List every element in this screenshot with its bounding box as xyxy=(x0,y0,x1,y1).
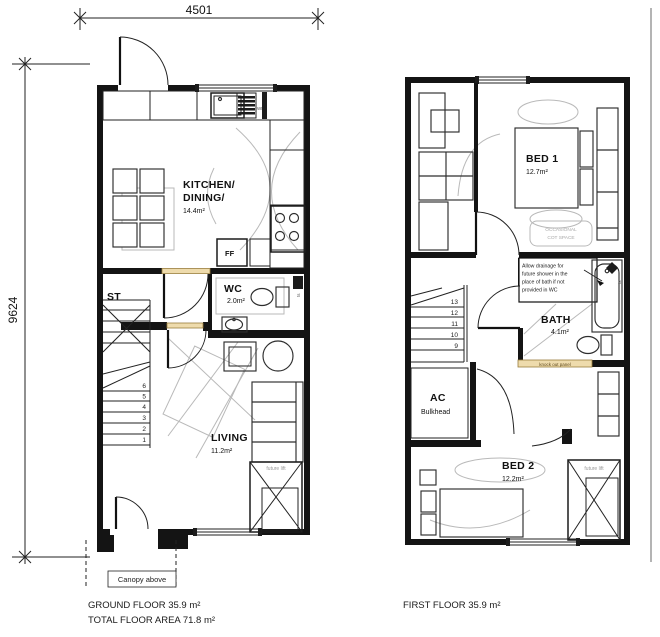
ff-bed1-door xyxy=(476,212,519,255)
ff-bath-area: 4.1m² xyxy=(551,329,570,336)
svg-text:place of bath if not: place of bath if not xyxy=(522,280,565,286)
ff-bed1-bed xyxy=(515,128,593,208)
dimension-top: 4501 xyxy=(74,3,324,30)
ff-future-lift-label: future lift xyxy=(584,466,604,472)
ff-note-arrowhead xyxy=(597,280,604,286)
svg-text:BED 1: BED 1 xyxy=(526,153,558,165)
svg-text:9: 9 xyxy=(454,343,458,350)
gf-living-area: 11.2m² xyxy=(211,448,233,455)
ff-footer-area: FIRST FLOOR 35.9 m² xyxy=(403,600,500,611)
floor-plan-drawing: 4501 9624 xyxy=(0,0,660,637)
ff-bed1-window xyxy=(475,76,530,84)
ff-ac-bulkhead: AC Bulkhead xyxy=(411,368,468,438)
ff-landing-door-arc xyxy=(477,369,514,434)
gf-wc-label: WC xyxy=(224,283,242,295)
gf-porch-stubs xyxy=(97,535,188,552)
dimension-left: 9624 xyxy=(6,57,90,564)
ff-drainage-note: Allow drainage for future shower in the … xyxy=(519,258,604,302)
svg-text:6: 6 xyxy=(142,383,146,390)
svg-text:5: 5 xyxy=(142,394,146,401)
ff-knock-out-label: knock out panel xyxy=(539,362,571,367)
svg-text:provided in WC: provided in WC xyxy=(522,288,558,294)
gf-sofa xyxy=(252,382,303,462)
ff-bed1-label: BED 1 12.7m² xyxy=(526,153,558,176)
floor-plan-sheet: 4501 9624 xyxy=(0,0,660,637)
svg-text:12.7m²: 12.7m² xyxy=(526,169,548,176)
gf-wc-basin xyxy=(222,317,247,332)
svg-text:10: 10 xyxy=(451,332,459,339)
ff-cot-space: OCCASIONAL COT SPACE xyxy=(530,221,592,246)
ff-bed2: BED 2 12.2m² xyxy=(420,372,619,537)
ff-bath-label: BATH xyxy=(541,314,571,326)
ff-outer-walls xyxy=(405,77,630,545)
svg-text:DINING/: DINING/ xyxy=(183,192,225,204)
gf-dining-table xyxy=(113,169,164,247)
gf-wall-fixture xyxy=(293,276,303,289)
ff-future-lift: future lift xyxy=(568,460,620,540)
gf-wc-fixture-tag: ts xyxy=(296,293,301,297)
ff-ac-sub-label: Bulkhead xyxy=(421,409,450,416)
gf-toilet xyxy=(251,287,289,307)
svg-text:OCCASIONAL: OCCASIONAL xyxy=(545,227,577,233)
svg-text:KITCHEN/: KITCHEN/ xyxy=(183,179,235,191)
gf-hob xyxy=(271,206,305,252)
ff-bed2-label: BED 2 xyxy=(502,460,534,472)
gf-canopy-label: Canopy above xyxy=(118,575,166,584)
gf-hall-kitchen-door xyxy=(164,274,208,318)
gf-future-lift-label: future lift xyxy=(266,466,286,472)
svg-text:Allow drainage for: Allow drainage for xyxy=(522,264,564,270)
gf-fridge-freezer: FF xyxy=(217,239,270,266)
svg-text:14.4m²: 14.4m² xyxy=(183,208,205,215)
ff-toilet xyxy=(577,335,612,355)
ff-bed1-furniture xyxy=(419,93,473,250)
svg-text:1: 1 xyxy=(142,437,146,444)
gf-front-door xyxy=(116,497,148,529)
gf-wc-area: 2.0m² xyxy=(227,298,246,305)
ff-bed2-area: 12.2m² xyxy=(502,476,524,483)
dimension-left-value: 9624 xyxy=(6,296,20,323)
gf-lintel-living xyxy=(167,323,203,328)
ff-stairs: 13 12 11 10 9 xyxy=(411,285,467,362)
gf-ff-label: FF xyxy=(225,249,235,258)
first-floor-plan: knock out panel BED 1 12.7m² xyxy=(403,76,630,611)
ff-bed1-wardrobe xyxy=(597,108,618,240)
svg-text:4: 4 xyxy=(142,404,146,411)
ff-bath-door xyxy=(478,286,520,328)
dimension-top-value: 4501 xyxy=(186,3,213,17)
svg-text:12: 12 xyxy=(451,310,459,317)
gf-wc: WC 2.0m² ts xyxy=(216,276,303,332)
ground-floor-plan: WM FF KITCHEN/ DINING/ 14.4m² xyxy=(86,37,310,626)
gf-st-label: ST xyxy=(107,291,121,303)
gf-lintel-hall xyxy=(162,269,210,274)
gf-top-entrance-door xyxy=(120,37,168,85)
gf-round-table xyxy=(263,341,293,371)
gf-footer-area: GROUND FLOOR 35.9 m² xyxy=(88,600,200,611)
svg-text:3: 3 xyxy=(142,415,146,422)
ff-corridor-radiator xyxy=(598,372,619,436)
gf-future-lift: future lift xyxy=(250,462,302,532)
svg-text:2: 2 xyxy=(142,426,146,433)
gf-kitchen-label: KITCHEN/ DINING/ 14.4m² xyxy=(183,179,235,215)
svg-text:11: 11 xyxy=(451,321,458,328)
svg-text:future shower in the: future shower in the xyxy=(522,272,568,278)
svg-text:COT SPACE: COT SPACE xyxy=(547,235,574,241)
ff-ac-label: AC xyxy=(430,392,446,404)
gf-footer-total: TOTAL FLOOR AREA 71.8 m² xyxy=(88,615,215,626)
svg-text:13: 13 xyxy=(451,299,459,306)
gf-living-label: LIVING xyxy=(211,432,248,444)
